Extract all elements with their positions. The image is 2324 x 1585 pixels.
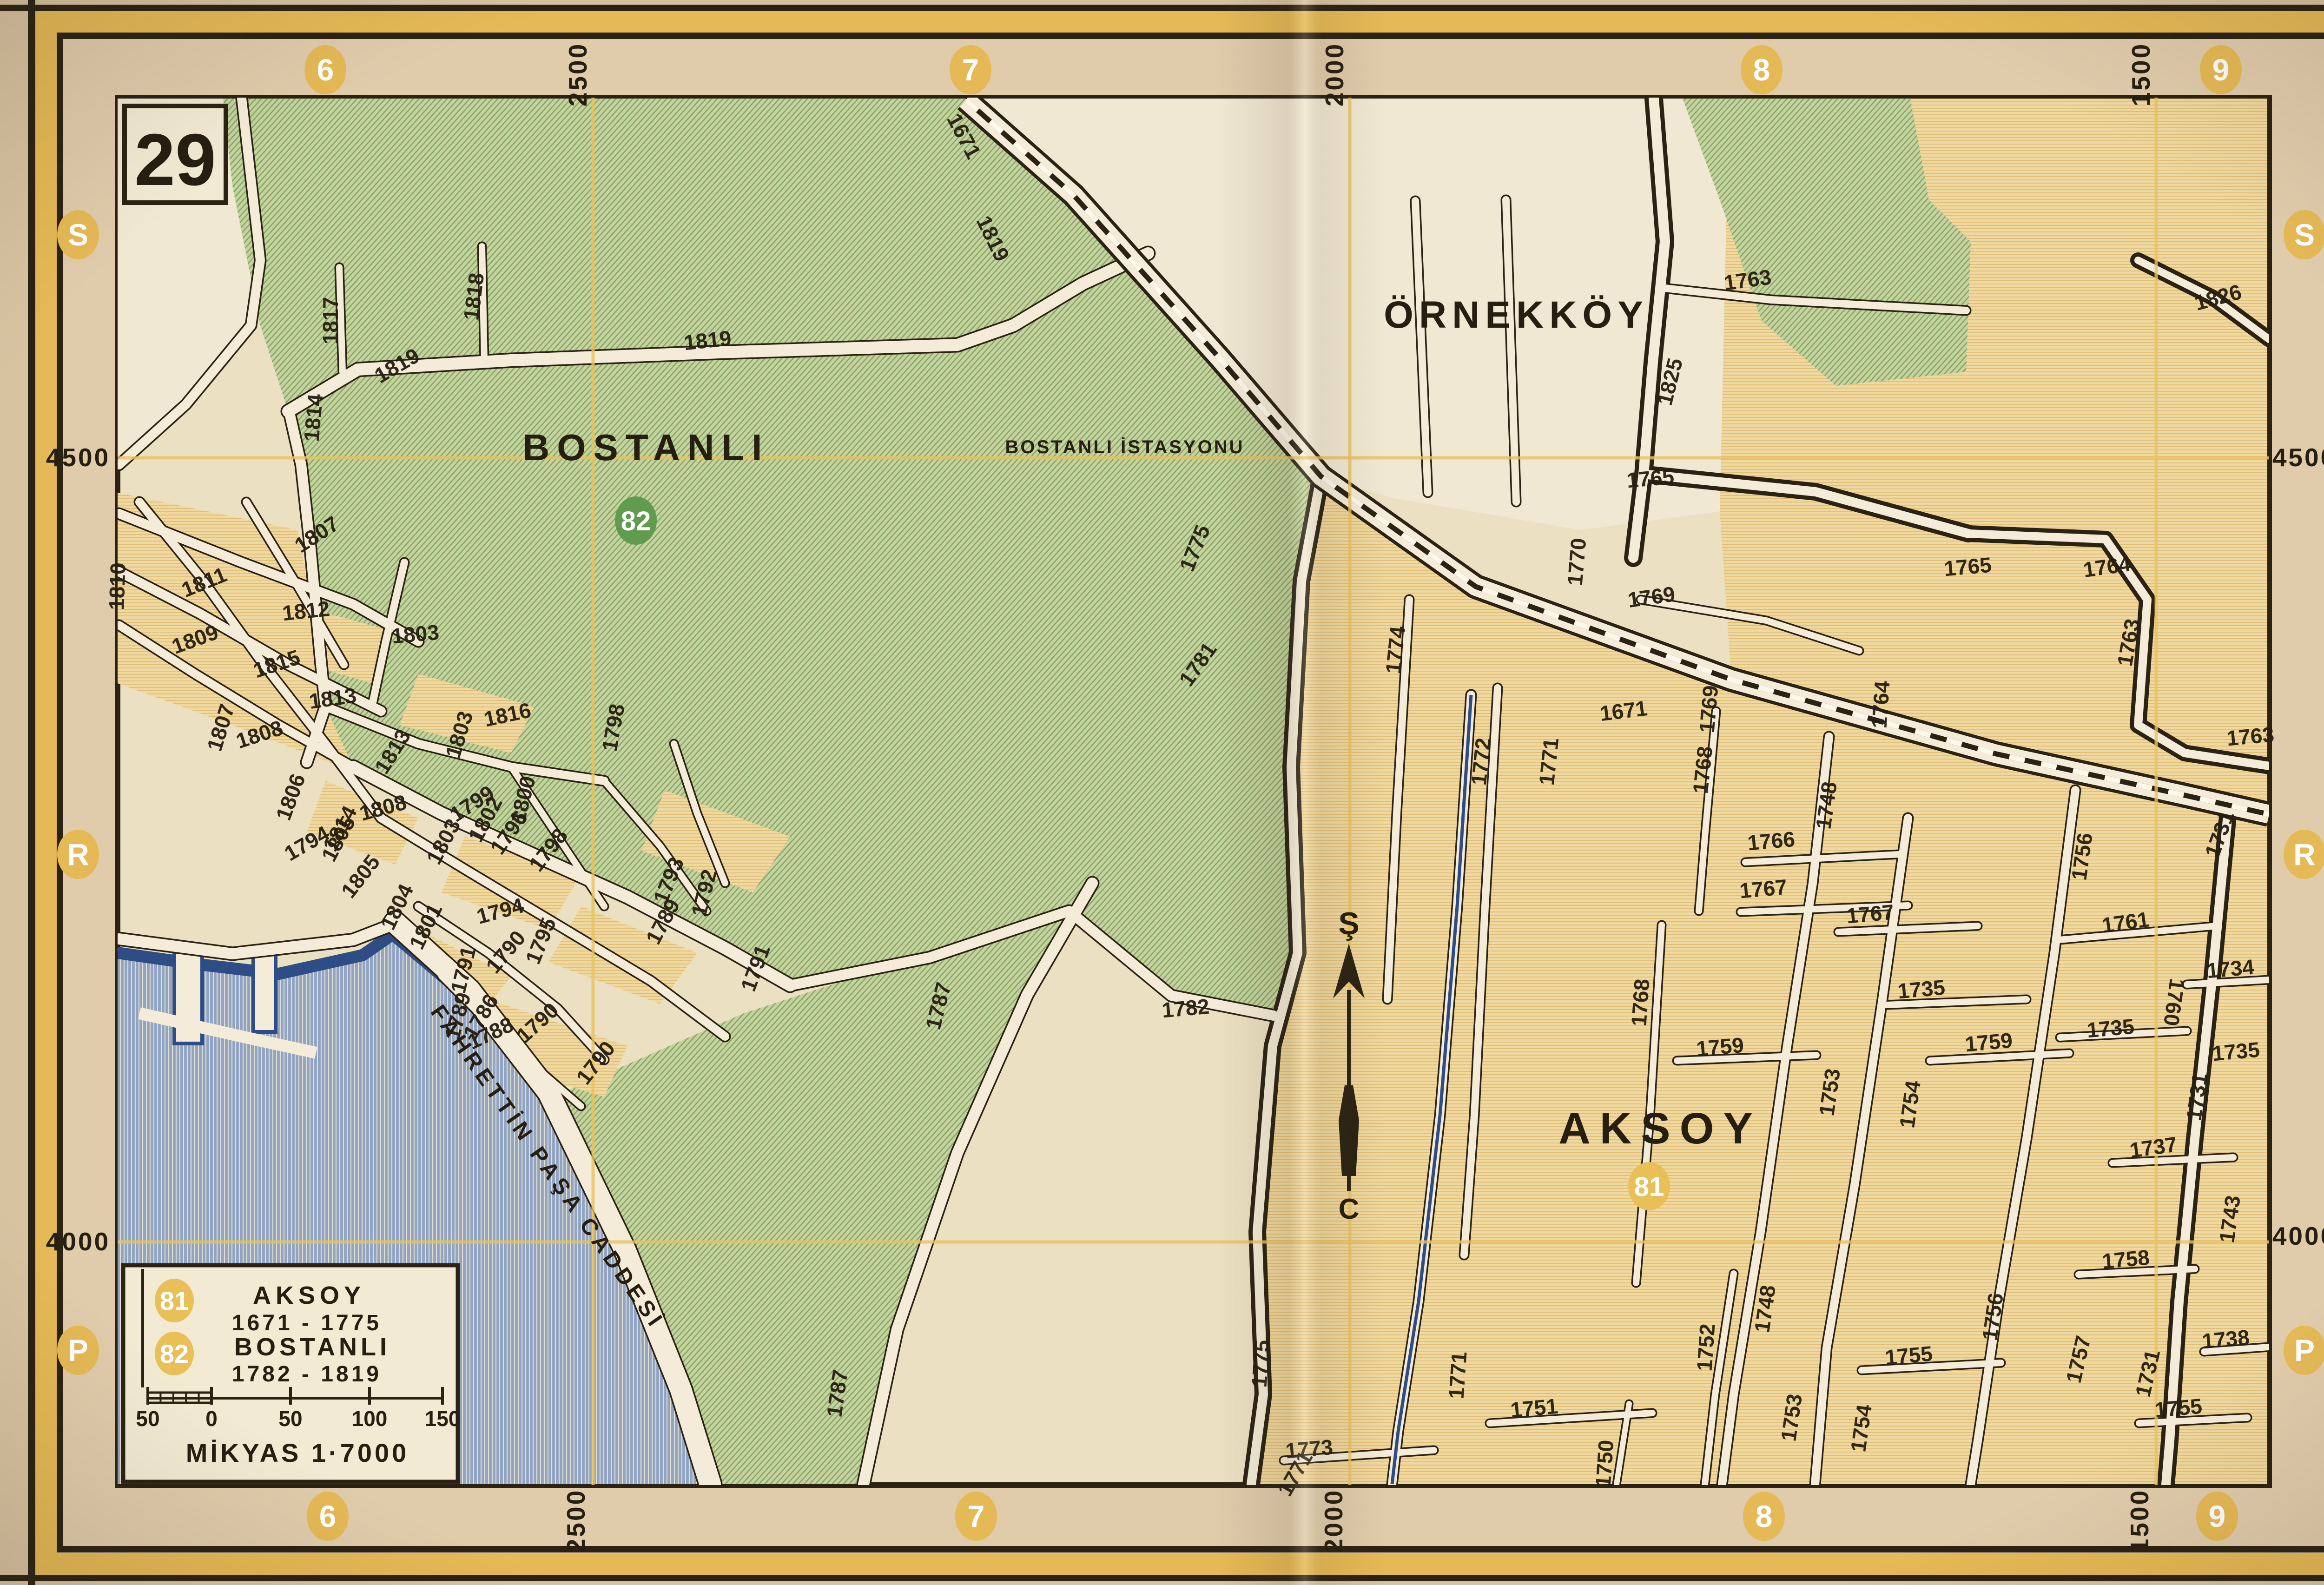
atlas-page: 818250050100150 167118191818181718191819… <box>0 0 2324 1585</box>
city-atlas-map: 818250050100150 167118191818181718191819… <box>0 0 2324 1585</box>
photo-vignette <box>0 0 2324 1585</box>
